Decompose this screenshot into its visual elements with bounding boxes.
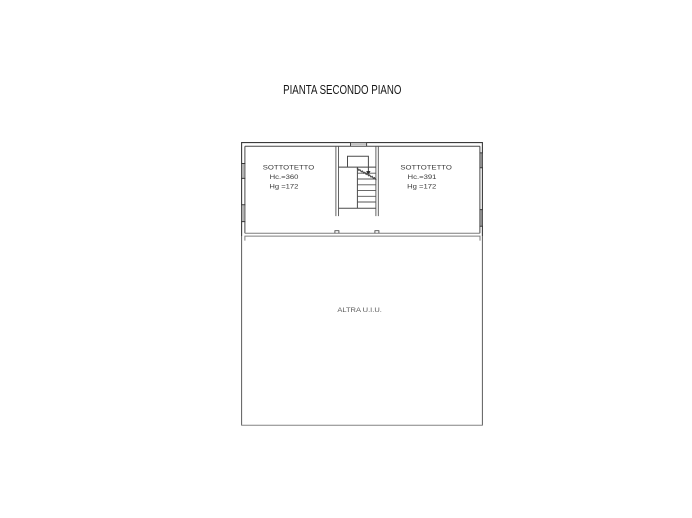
svg-text:SOTTOTETTO: SOTTOTETTO bbox=[263, 164, 315, 171]
svg-text:SOTTOTETTO: SOTTOTETTO bbox=[400, 164, 452, 171]
svg-text:Hg =172: Hg =172 bbox=[407, 183, 437, 190]
svg-text:Hg =172: Hg =172 bbox=[269, 183, 298, 190]
svg-text:Hc.=391: Hc.=391 bbox=[408, 174, 437, 181]
svg-text:Hc.=360: Hc.=360 bbox=[270, 174, 299, 181]
svg-text:PIANTA SECONDO PIANO: PIANTA SECONDO PIANO bbox=[283, 82, 401, 97]
svg-text:ALTRA U.I.U.: ALTRA U.I.U. bbox=[337, 307, 382, 314]
